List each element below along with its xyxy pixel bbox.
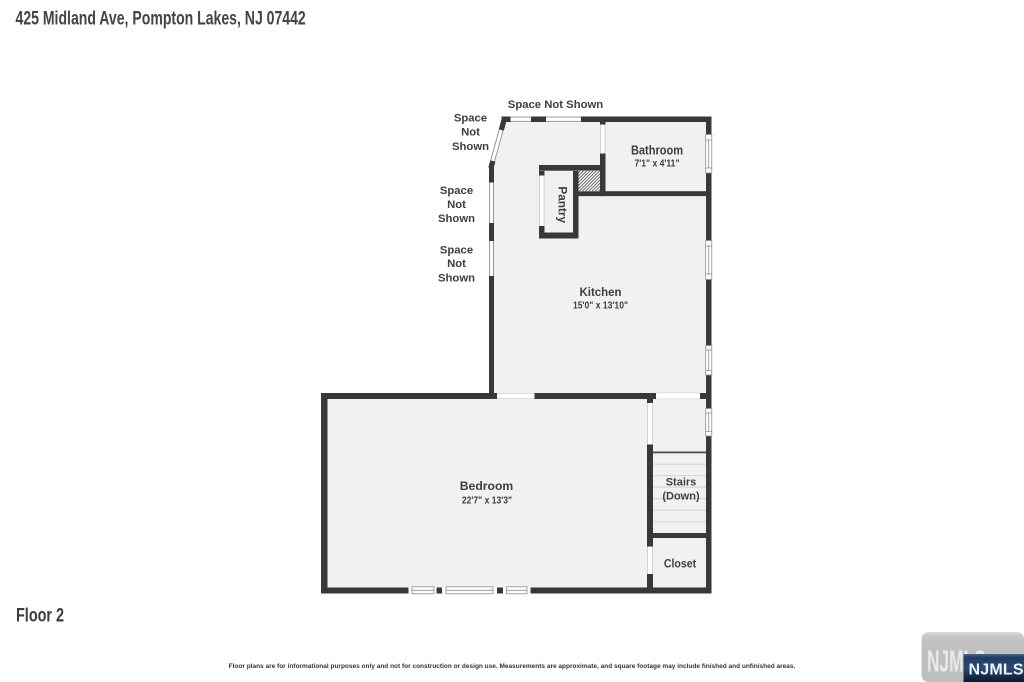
svg-text:Closet: Closet bbox=[664, 558, 696, 571]
svg-text:Shown: Shown bbox=[438, 272, 475, 284]
svg-text:Floor plans are for informatio: Floor plans are for informational purpos… bbox=[229, 663, 796, 670]
svg-text:Space Not Shown: Space Not Shown bbox=[508, 99, 604, 111]
svg-text:Space: Space bbox=[454, 112, 487, 124]
svg-text:7'1" x 4'11": 7'1" x 4'11" bbox=[634, 157, 679, 169]
svg-text:NJMLS: NJMLS bbox=[969, 662, 1024, 679]
svg-text:Bedroom: Bedroom bbox=[460, 479, 514, 493]
svg-text:22'7" x 13'3": 22'7" x 13'3" bbox=[462, 494, 512, 506]
svg-text:Not: Not bbox=[447, 258, 466, 270]
svg-text:Pantry: Pantry bbox=[555, 186, 569, 223]
svg-text:(Down): (Down) bbox=[662, 491, 700, 503]
svg-text:Floor 2: Floor 2 bbox=[16, 603, 64, 626]
svg-text:Space: Space bbox=[440, 185, 473, 197]
svg-text:15'0" x 13'10": 15'0" x 13'10" bbox=[573, 299, 628, 311]
svg-text:Space: Space bbox=[440, 244, 473, 256]
svg-text:Not: Not bbox=[447, 199, 466, 211]
svg-text:Shown: Shown bbox=[438, 213, 475, 225]
svg-text:Not: Not bbox=[461, 126, 480, 138]
svg-text:Stairs: Stairs bbox=[666, 477, 697, 489]
svg-text:Shown: Shown bbox=[452, 141, 489, 153]
svg-text:Bathroom: Bathroom bbox=[631, 142, 683, 157]
svg-text:425 Midland Ave, Pompton Lakes: 425 Midland Ave, Pompton Lakes, NJ 07442 bbox=[16, 7, 306, 29]
svg-text:Kitchen: Kitchen bbox=[579, 285, 621, 299]
